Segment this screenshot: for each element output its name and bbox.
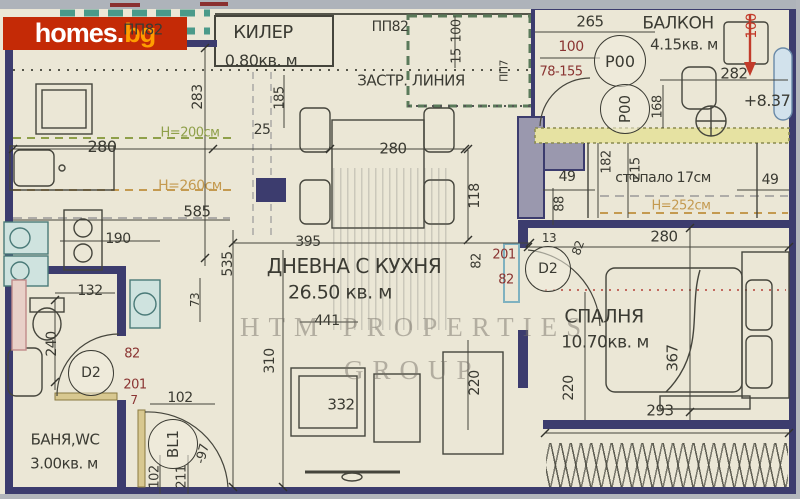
dimension-label: 535	[221, 251, 235, 276]
dimension-label: 7	[130, 394, 137, 406]
room-living-label: ДНЕВНА С КУХНЯ	[267, 256, 441, 276]
dimension-label: 441	[314, 314, 339, 328]
dimension-label: 395	[295, 235, 320, 249]
dimension-label: 25	[254, 123, 271, 137]
room-bath-area: 3.00кв. м	[30, 457, 98, 472]
dimension-label: 15	[451, 48, 464, 64]
dimension-label: 49	[762, 173, 779, 187]
dimension-label: 102	[149, 465, 162, 488]
height-260: Н=260см	[158, 179, 222, 193]
dimension-label: 190	[105, 232, 130, 246]
dimension-label: 201	[492, 249, 515, 262]
door-marker-text: D2	[81, 365, 101, 381]
watermark-text-2: GROUP	[344, 355, 481, 386]
dimension-label: 73	[189, 293, 201, 307]
dimension-label: 102	[167, 391, 192, 405]
dimension-label: 367	[666, 344, 681, 371]
dimension-label: 118	[468, 183, 482, 208]
balcony-railing	[546, 443, 788, 487]
dimension-label: 215	[630, 157, 643, 180]
door-marker-text: BL1	[164, 430, 182, 458]
height-200: Н=200см	[161, 127, 220, 140]
pp82-right-label: ПП82	[372, 20, 409, 34]
dimension-label: 585	[183, 205, 210, 220]
door-marker-text: Р00	[616, 95, 634, 123]
room-balkon-label: БАЛКОН	[642, 16, 713, 33]
room-bedroom-label: СПАЛНЯ	[564, 308, 643, 327]
dimension-label: 211	[176, 465, 189, 488]
room-balkon-area: 4.15кв. м	[650, 38, 718, 53]
door-marker-D2: D2	[68, 350, 114, 396]
dimension-label: 100	[745, 13, 759, 38]
zastr-linia-label: ЗАСТР. ЛИНИЯ	[357, 74, 465, 89]
dimension-label: 220	[562, 375, 576, 400]
dimension-label: 283	[191, 84, 205, 109]
dimension-label: 132	[77, 284, 102, 298]
dimension-label: 185	[274, 86, 287, 109]
bottom-border	[0, 494, 800, 499]
door-marker-Р00: Р00	[594, 35, 646, 87]
dimension-label: 332	[327, 398, 354, 413]
room-kiler-label: КИЛЕР	[233, 24, 293, 42]
dimension-label: 265	[576, 15, 603, 30]
floorplan-image: HTM PROPERTIES GROUP homes.bg КИЛЕР0.80к…	[0, 0, 800, 499]
door-marker-text: D2	[538, 261, 558, 277]
room-kiler-area: 0.80кв. м	[225, 53, 297, 69]
watermark-text-1: HTM PROPERTIES	[240, 312, 590, 343]
dimension-label: 100	[558, 40, 583, 54]
dimension-label: 78-155	[539, 66, 582, 79]
top-red-mark	[110, 3, 140, 7]
dimension-label: 49	[559, 170, 576, 184]
dimension-label: 310	[263, 348, 277, 373]
dimension-label: 100	[451, 19, 464, 42]
right-border	[796, 0, 800, 499]
room-bath-label: БАНЯ,WC	[31, 433, 100, 448]
room-living-area: 26.50 кв. м	[288, 284, 392, 303]
dimension-label: 280	[87, 139, 116, 155]
dimension-label: 240	[45, 331, 59, 356]
dimension-label: 282	[720, 67, 747, 82]
dimension-label: 82	[124, 348, 140, 361]
dimension-label: 280	[650, 230, 677, 245]
dimension-label: 220	[468, 370, 482, 395]
top-red-mark-2	[200, 2, 228, 6]
door-marker-text: Р00	[605, 52, 635, 71]
dimension-label: 13	[542, 232, 556, 244]
room-bedroom-area: 10.70кв. м	[561, 335, 649, 352]
pp82-left-label: ПП82	[123, 23, 163, 38]
dimension-label: 182	[601, 150, 614, 173]
dimension-label: 88	[554, 196, 567, 212]
door-marker-BL1: BL1	[148, 419, 198, 469]
door-marker-Р00: Р00	[600, 84, 650, 134]
watermark-logo	[333, 168, 449, 330]
dimension-label: 82	[471, 253, 484, 269]
dimension-label: 168	[652, 95, 665, 118]
dimension-label: 201	[123, 379, 146, 392]
dimension-label: 280	[379, 142, 406, 157]
dimension-label: 82	[498, 274, 514, 287]
logo-main-text: homes	[35, 20, 117, 47]
elevation-label: +8.37	[744, 93, 791, 109]
dimension-label: 293	[646, 404, 673, 419]
pp7-label: ПП7	[499, 60, 510, 82]
door-marker-D2: D2	[525, 246, 571, 292]
height-252: Н=252см	[652, 200, 711, 213]
